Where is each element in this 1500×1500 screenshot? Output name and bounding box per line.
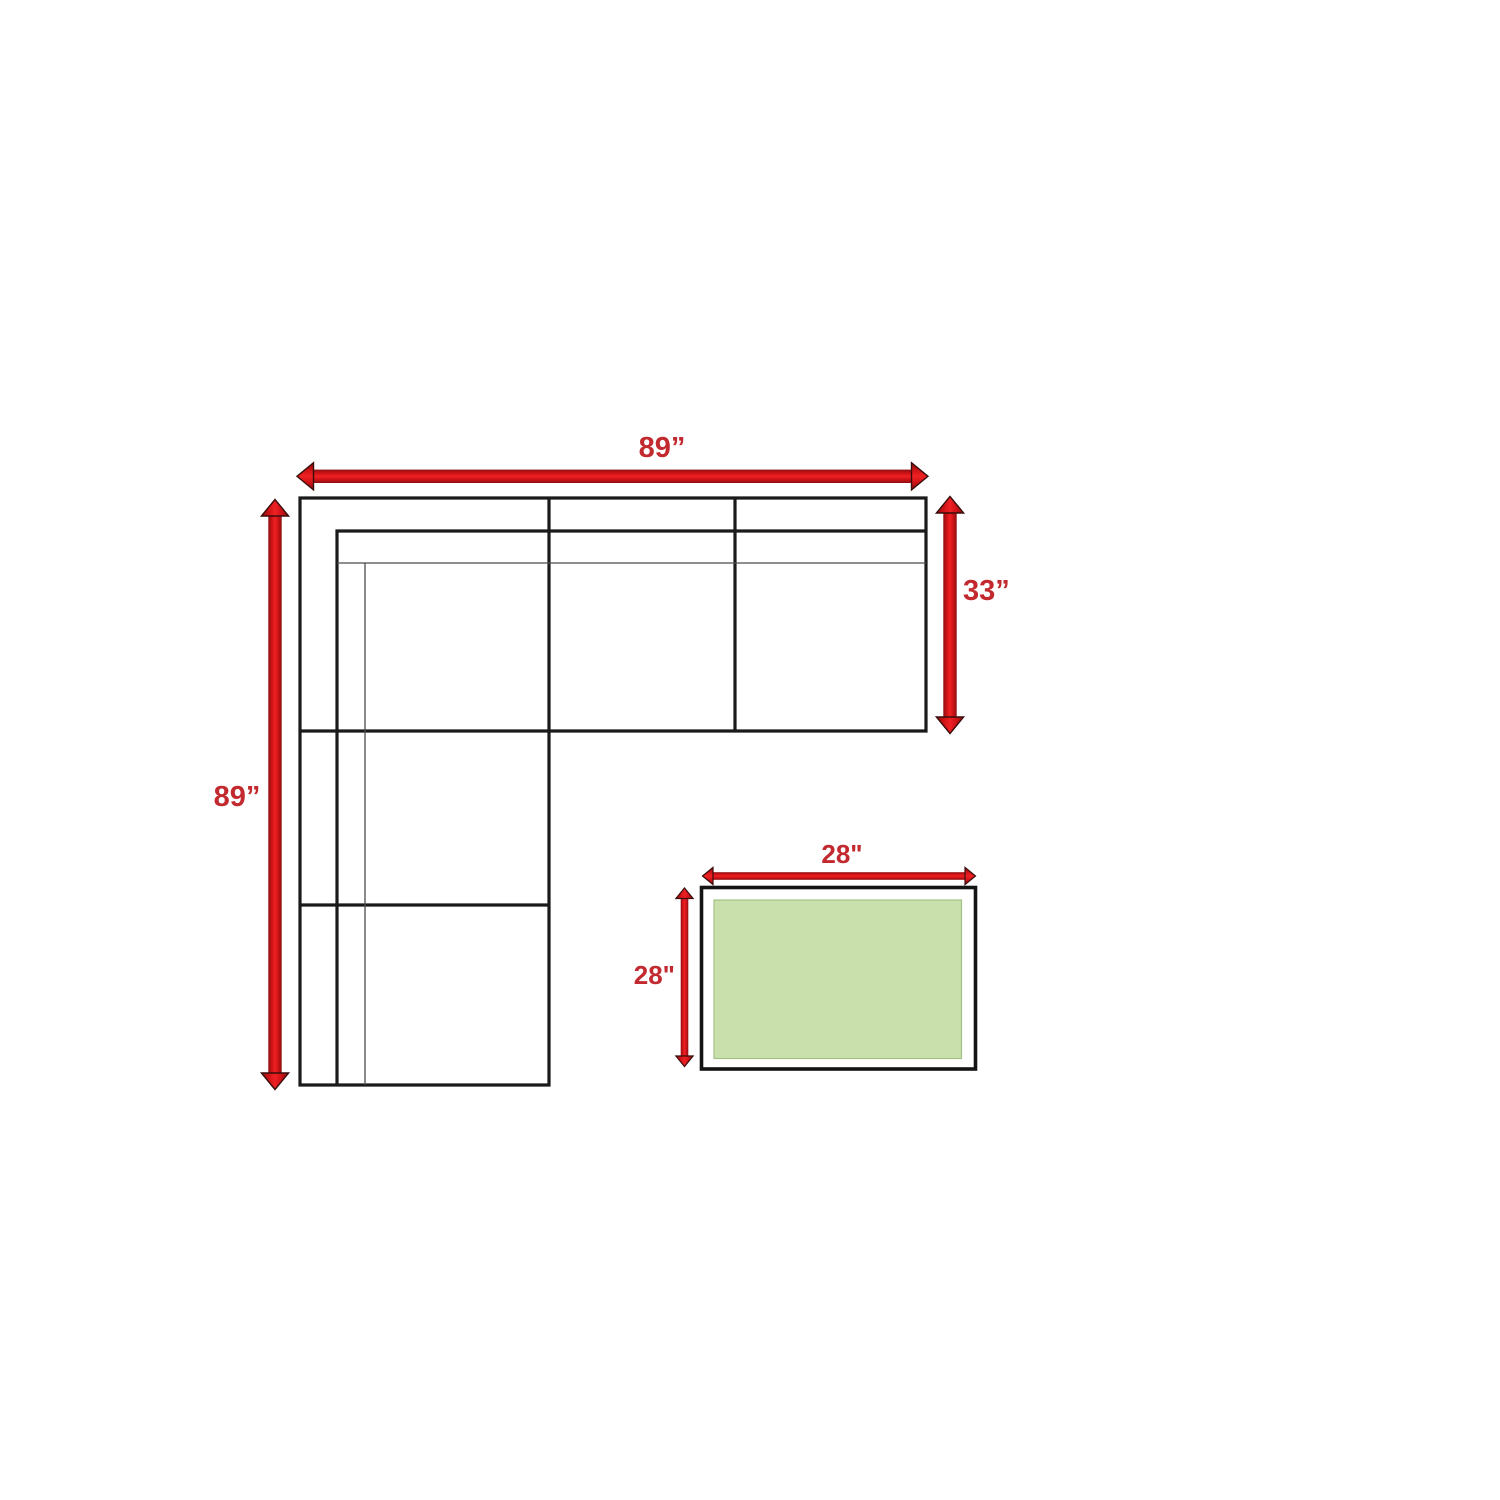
svg-text:28": 28": [821, 839, 862, 869]
svg-text:33”: 33”: [963, 575, 1010, 607]
svg-text:89”: 89”: [214, 781, 261, 813]
svg-text:89”: 89”: [639, 432, 686, 464]
svg-text:28": 28": [634, 960, 675, 990]
